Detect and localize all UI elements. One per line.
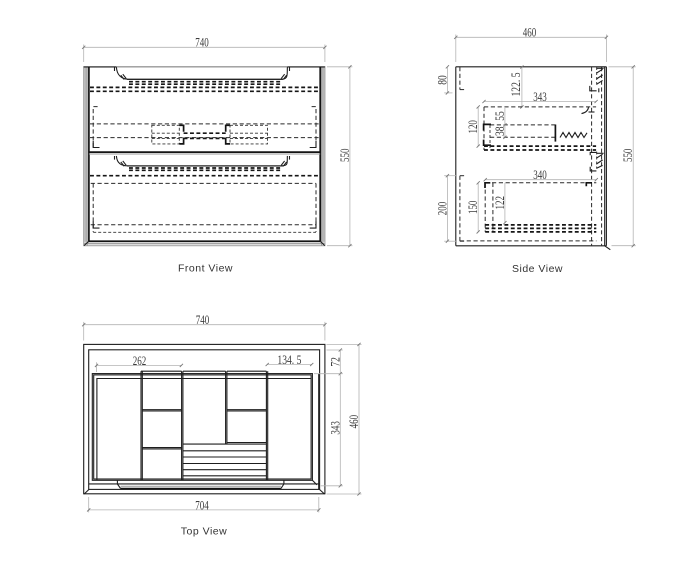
svg-text:740: 740 (195, 36, 209, 50)
svg-text:55: 55 (493, 111, 507, 121)
svg-text:134. 5: 134. 5 (277, 353, 301, 367)
svg-text:150: 150 (466, 201, 480, 215)
svg-text:Side View: Side View (512, 263, 563, 275)
svg-text:340: 340 (533, 168, 547, 182)
svg-text:262: 262 (133, 354, 147, 368)
svg-text:343: 343 (533, 90, 547, 104)
svg-text:122. 5: 122. 5 (509, 73, 523, 97)
svg-text:Top View: Top View (181, 526, 227, 538)
svg-text:550: 550 (338, 149, 352, 163)
svg-text:80: 80 (435, 75, 449, 85)
svg-text:122: 122 (493, 196, 507, 210)
svg-text:740: 740 (196, 313, 210, 327)
svg-text:343: 343 (328, 421, 342, 435)
svg-text:72: 72 (328, 357, 342, 367)
svg-text:120: 120 (466, 120, 480, 134)
svg-text:460: 460 (523, 26, 537, 40)
svg-text:38: 38 (493, 126, 507, 136)
svg-text:460: 460 (347, 415, 361, 429)
svg-text:550: 550 (621, 149, 635, 163)
svg-text:Front View: Front View (178, 263, 233, 275)
svg-text:200: 200 (435, 202, 449, 216)
svg-text:704: 704 (195, 498, 209, 512)
